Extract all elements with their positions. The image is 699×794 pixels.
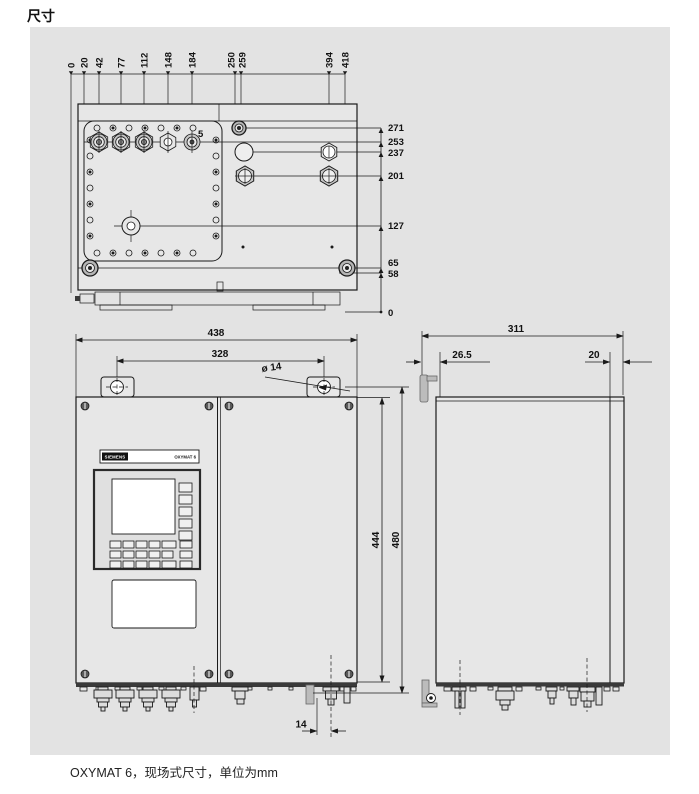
side-enclosure: [420, 375, 624, 687]
front-name-strip: SIEMENS OXYMAT 6: [100, 450, 199, 463]
svg-text:328: 328: [212, 349, 229, 360]
manual-page: 尺寸: [0, 0, 699, 794]
softkey-column: [179, 483, 192, 568]
svg-text:58: 58: [388, 269, 399, 280]
svg-text:259: 259: [238, 52, 249, 68]
brand-label: SIEMENS: [105, 455, 126, 460]
svg-text:250: 250: [227, 52, 238, 68]
svg-text:148: 148: [164, 52, 175, 68]
figure-caption: OXYMAT 6，现场式尺寸，单位为mm: [70, 762, 278, 781]
svg-text:0: 0: [67, 63, 78, 68]
front-operator-panel: [94, 470, 200, 569]
svg-text:201: 201: [388, 171, 405, 182]
svg-text:184: 184: [188, 51, 199, 68]
gland-note: 5: [198, 129, 204, 140]
svg-text:253: 253: [388, 137, 404, 148]
svg-text:20: 20: [588, 350, 600, 361]
svg-text:418: 418: [341, 52, 352, 68]
display-screen: [112, 479, 175, 534]
svg-text:237: 237: [388, 148, 404, 159]
svg-text:112: 112: [140, 53, 151, 68]
svg-text:271: 271: [388, 123, 405, 134]
dimension-drawing: 0 20 42 77 112 148 184 250 259 394 418: [0, 0, 699, 794]
svg-text:394: 394: [325, 51, 336, 68]
bottom-bracket: [306, 685, 314, 704]
keypad: [110, 541, 176, 568]
svg-text:77: 77: [117, 57, 128, 68]
svg-text:127: 127: [388, 221, 404, 232]
svg-text:42: 42: [95, 57, 106, 68]
svg-text:0: 0: [388, 308, 393, 319]
svg-text:65: 65: [388, 258, 399, 269]
svg-text:311: 311: [508, 324, 525, 335]
svg-text:480: 480: [391, 531, 402, 548]
svg-text:444: 444: [371, 531, 382, 548]
svg-text:438: 438: [208, 328, 225, 339]
wall-bracket-top-lip: [427, 376, 437, 381]
svg-text:14: 14: [295, 720, 307, 731]
front-label-plate: [112, 580, 196, 628]
svg-text:26.5: 26.5: [452, 350, 472, 361]
model-label: OXYMAT 6: [174, 455, 196, 460]
svg-text:20: 20: [80, 57, 91, 68]
